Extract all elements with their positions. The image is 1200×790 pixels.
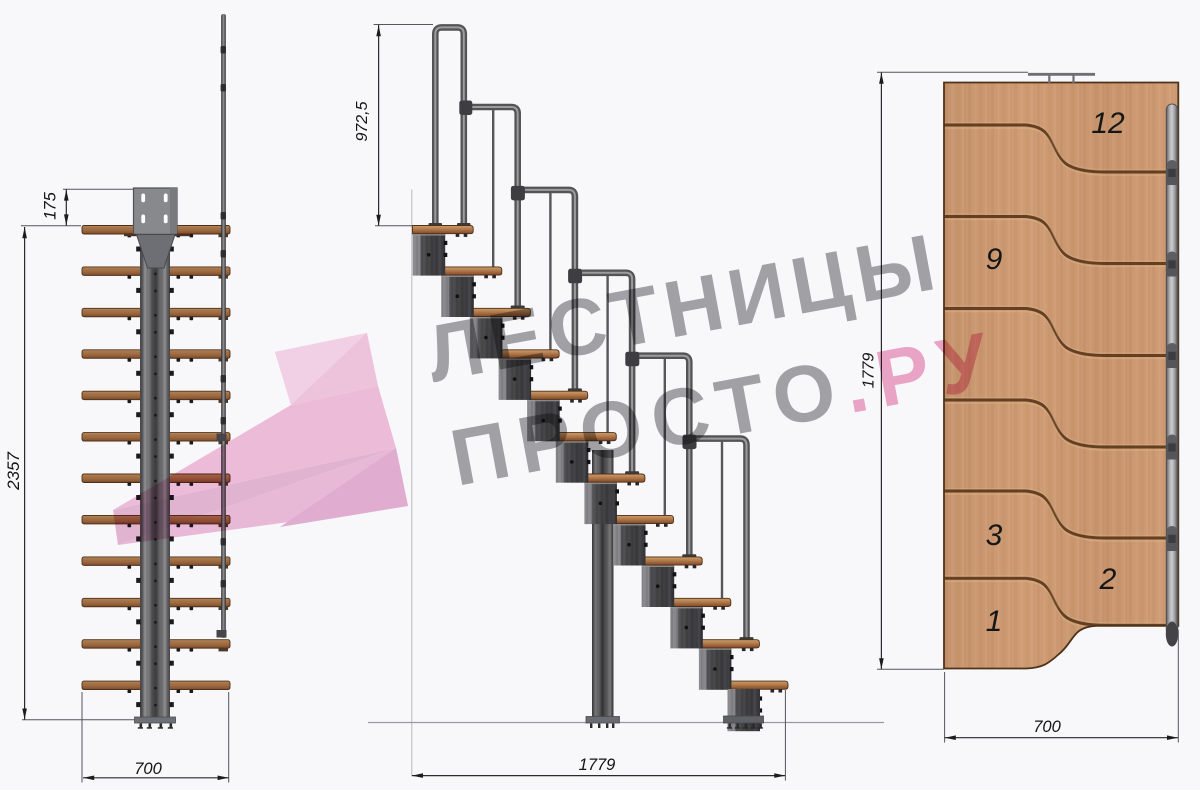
svg-text:972,5: 972,5 bbox=[354, 101, 371, 141]
svg-text:700: 700 bbox=[1033, 718, 1061, 736]
svg-text:2357: 2357 bbox=[4, 452, 23, 491]
svg-text:1: 1 bbox=[986, 605, 1003, 638]
svg-text:2: 2 bbox=[1099, 563, 1117, 596]
svg-text:700: 700 bbox=[134, 760, 162, 778]
svg-text:9: 9 bbox=[986, 243, 1003, 276]
svg-text:1779: 1779 bbox=[579, 756, 616, 774]
svg-text:175: 175 bbox=[42, 191, 60, 219]
svg-text:3: 3 bbox=[986, 519, 1003, 552]
svg-text:12: 12 bbox=[1091, 107, 1125, 140]
